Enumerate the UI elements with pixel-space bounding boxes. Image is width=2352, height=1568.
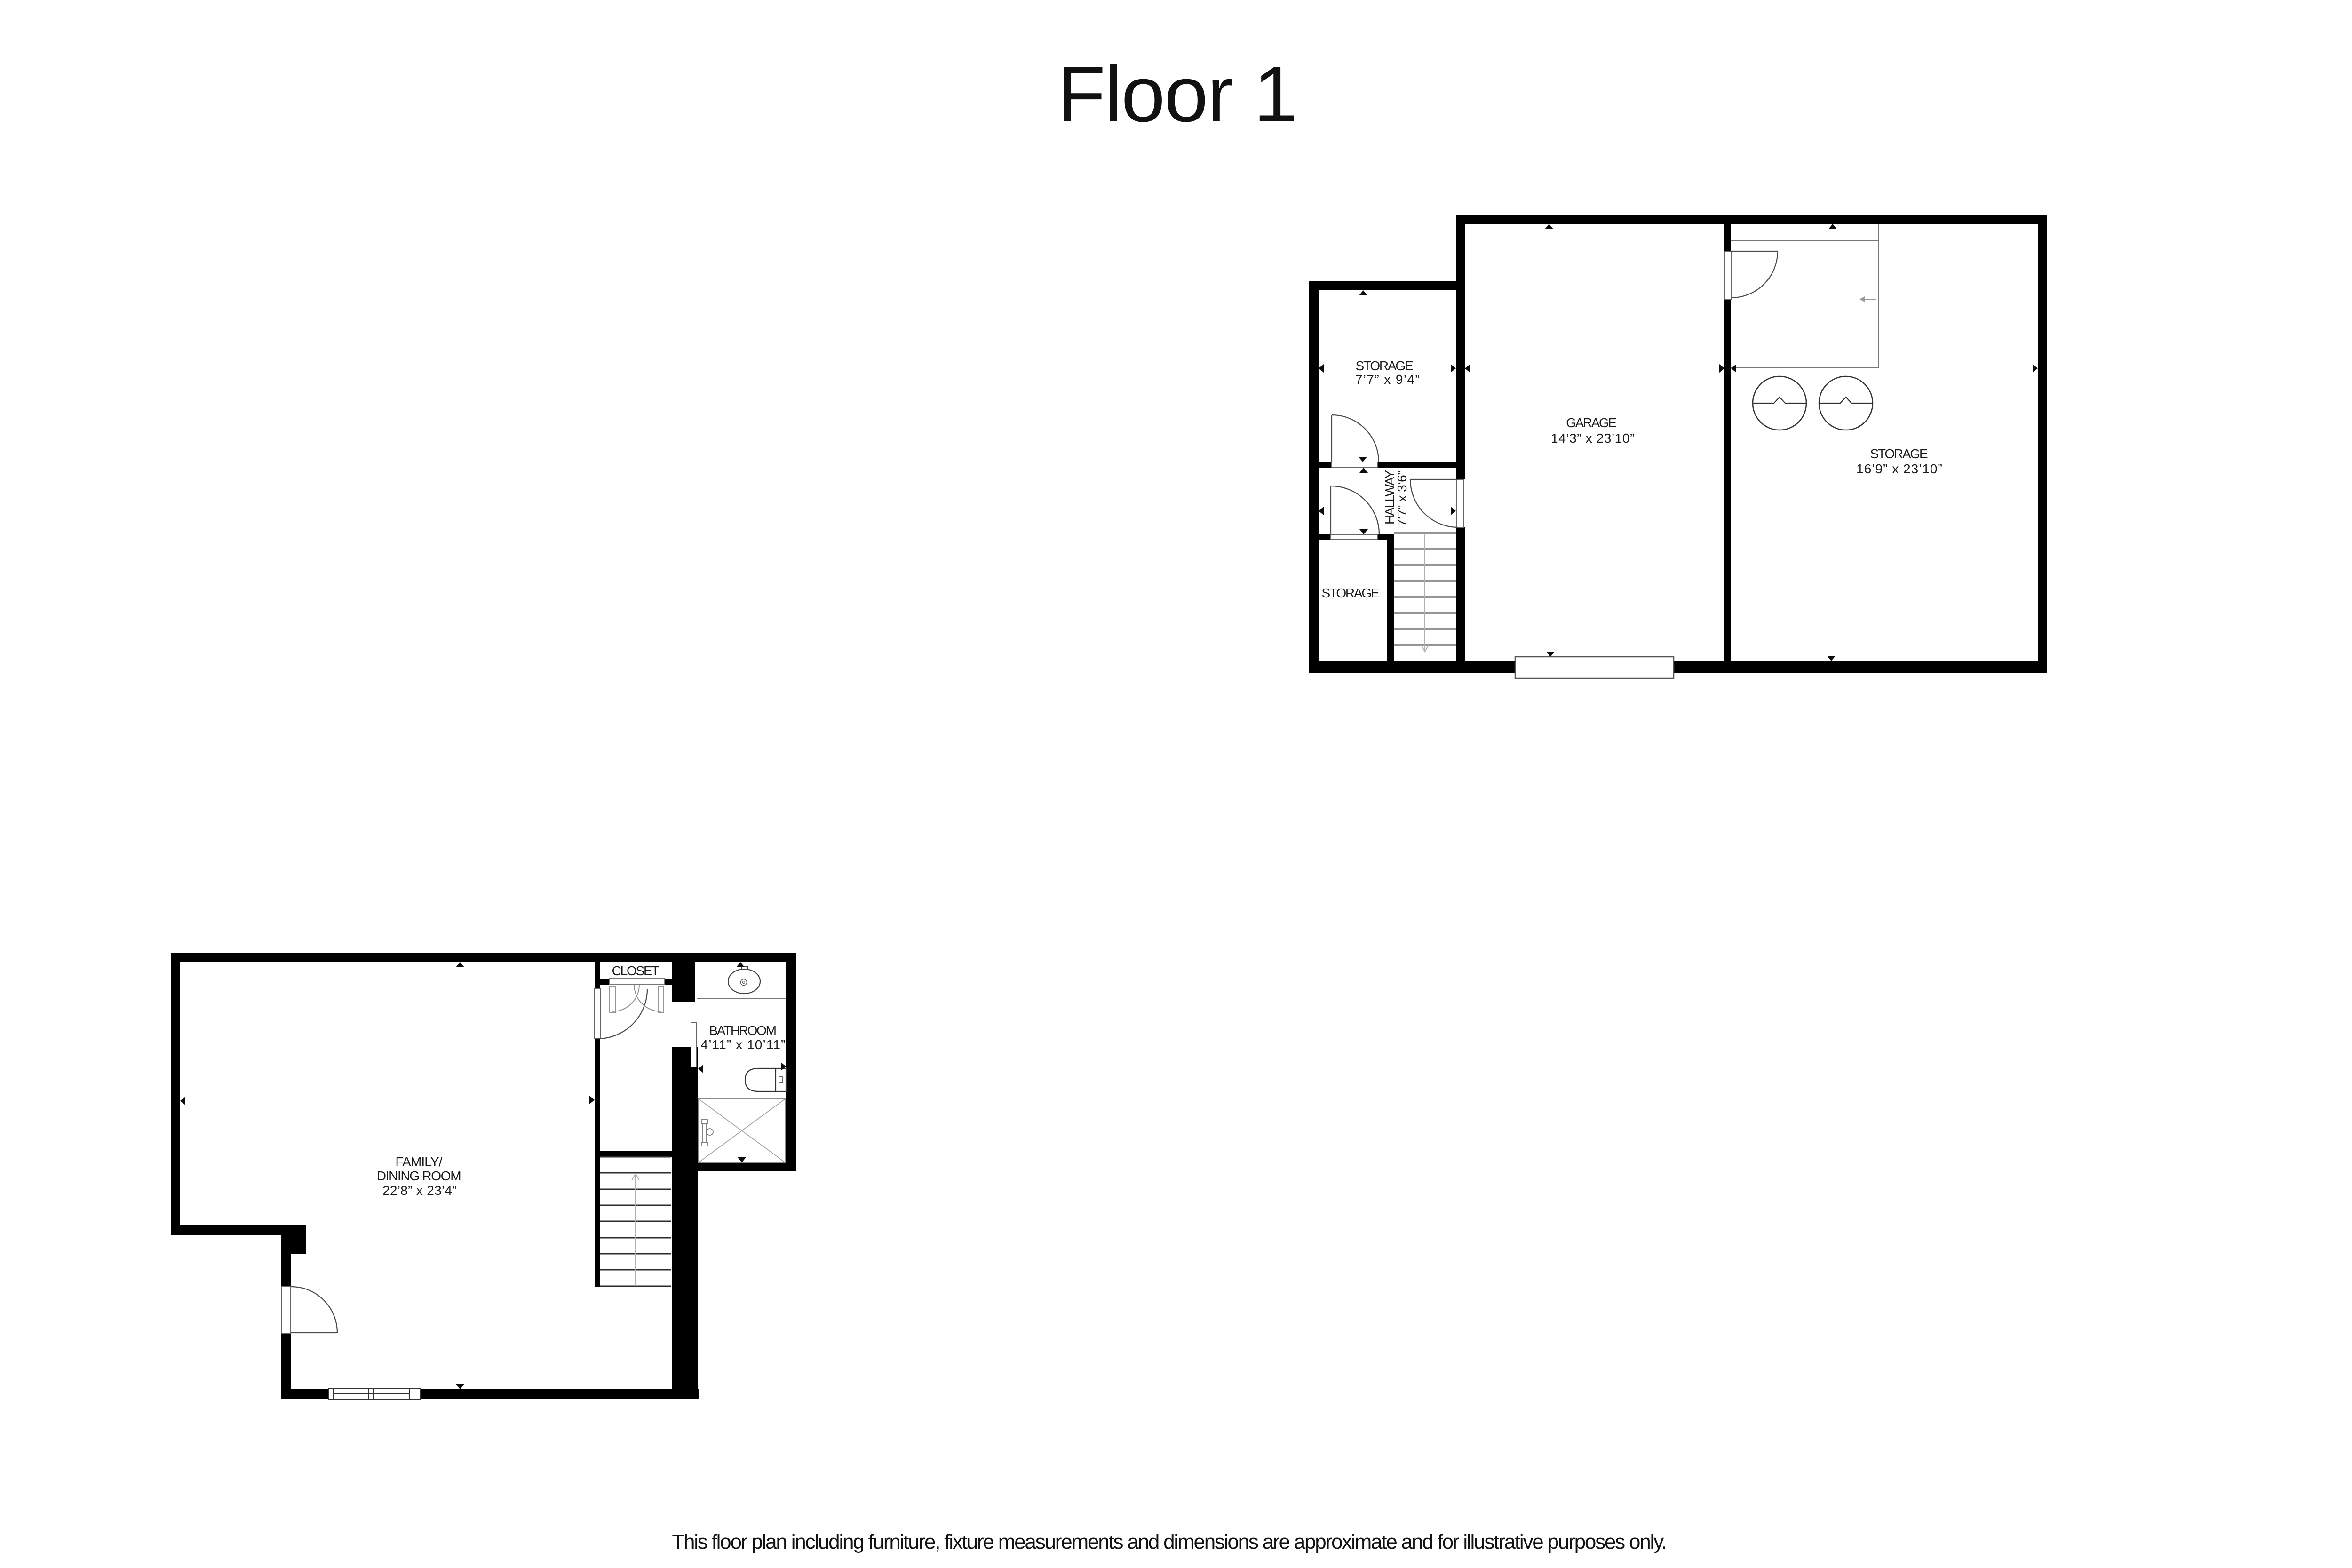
svg-text:22’8” x 23’4”: 22’8” x 23’4” (382, 1183, 457, 1198)
svg-text:14’3” x 23’10”: 14’3” x 23’10” (1551, 431, 1635, 446)
svg-text:FAMILY/: FAMILY/ (396, 1154, 443, 1169)
svg-text:DINING ROOM: DINING ROOM (377, 1169, 461, 1183)
svg-text:STORAGE: STORAGE (1870, 446, 1928, 461)
svg-text:7’7” x 3’6”: 7’7” x 3’6” (1395, 471, 1409, 527)
svg-text:Floor 1: Floor 1 (1057, 50, 1297, 138)
svg-text:STORAGE: STORAGE (1355, 358, 1413, 373)
svg-text:STORAGE: STORAGE (1321, 586, 1379, 600)
svg-text:CLOSET: CLOSET (612, 963, 660, 978)
svg-text:GARAGE: GARAGE (1566, 415, 1616, 430)
svg-text:16’9” x 23’10”: 16’9” x 23’10” (1856, 462, 1943, 476)
svg-text:This floor plan including furn: This floor plan including furniture, fix… (672, 1530, 1666, 1553)
svg-text:7’7” x 9’4”: 7’7” x 9’4” (1355, 372, 1420, 387)
svg-text:4’11” x 10’11”: 4’11” x 10’11” (701, 1037, 786, 1052)
svg-text:BATHROOM: BATHROOM (709, 1023, 776, 1038)
